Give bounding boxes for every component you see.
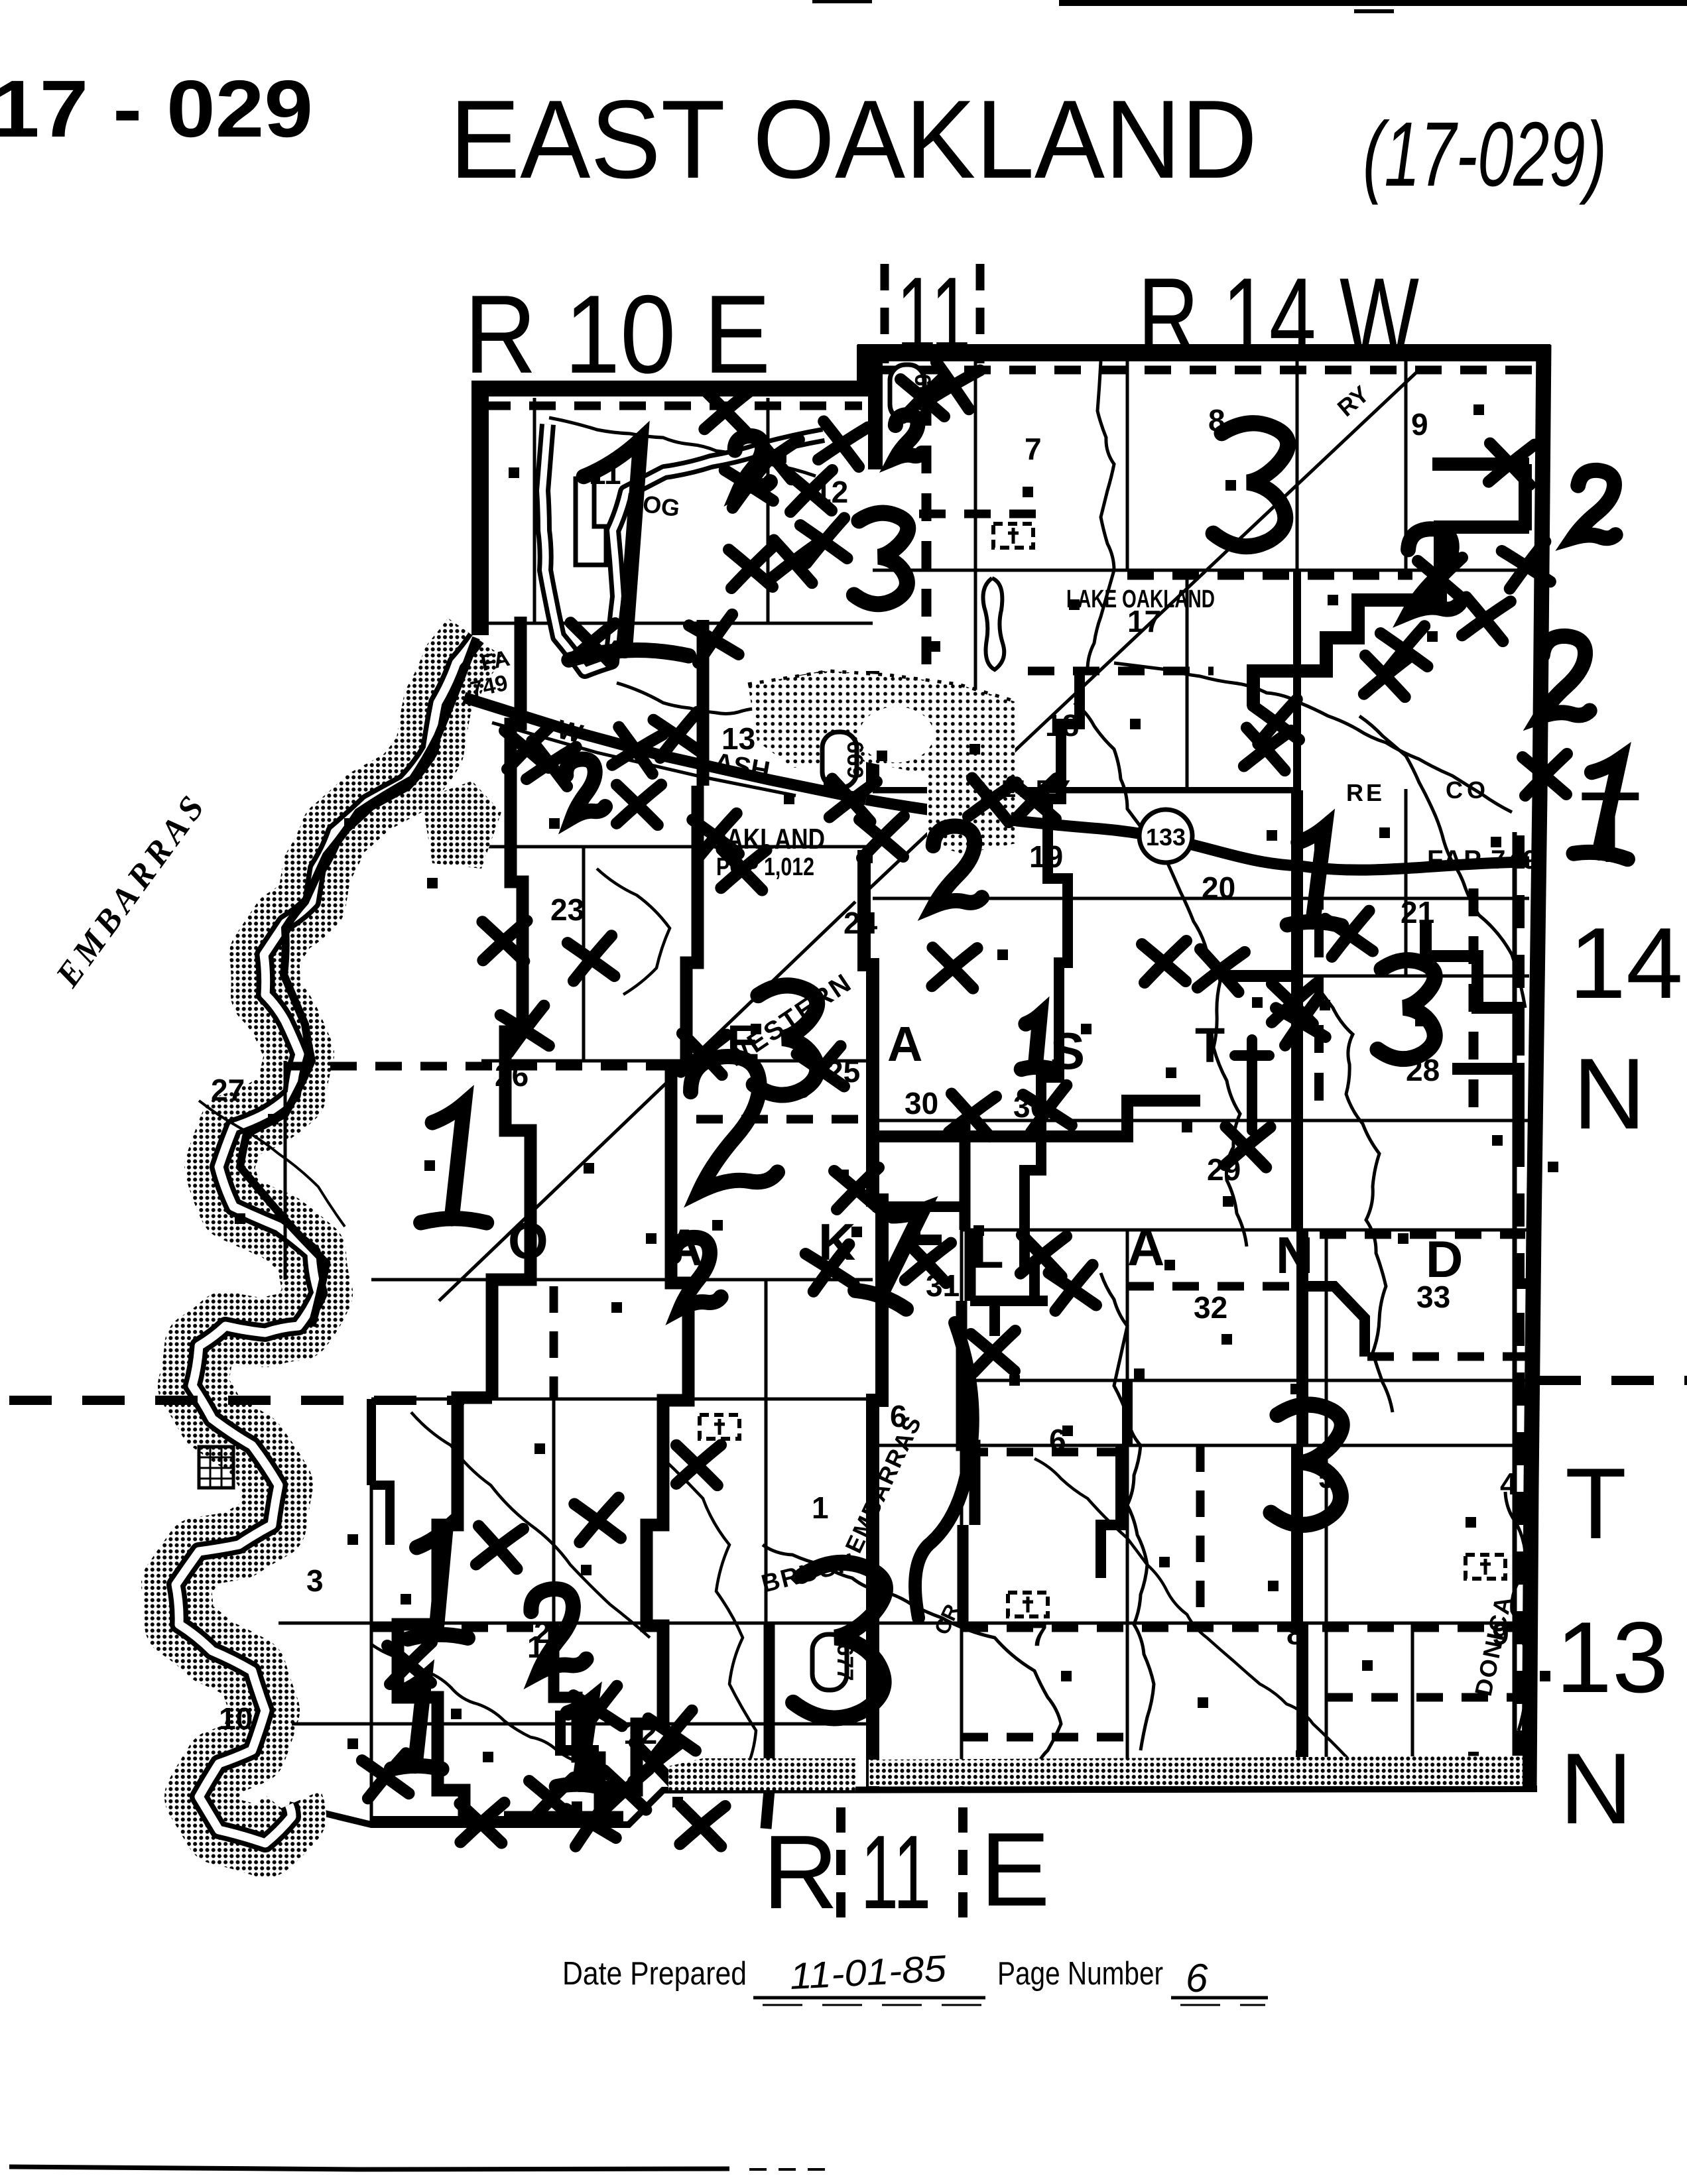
svg-text:L: L bbox=[972, 1221, 1004, 1279]
svg-text:D: D bbox=[1426, 1230, 1463, 1288]
svg-text:23: 23 bbox=[550, 892, 584, 927]
svg-text:RE: RE bbox=[1346, 779, 1385, 806]
svg-text:CO: CO bbox=[1446, 776, 1489, 804]
svg-text:11-01-85: 11-01-85 bbox=[788, 1947, 948, 1997]
svg-text:30: 30 bbox=[905, 1086, 938, 1121]
svg-text:133: 133 bbox=[1146, 823, 1186, 851]
svg-text:7: 7 bbox=[1031, 1618, 1048, 1652]
svg-text:N: N bbox=[1560, 1732, 1633, 1845]
svg-text:3: 3 bbox=[306, 1563, 324, 1598]
svg-text:669: 669 bbox=[842, 741, 867, 779]
svg-text:R 10 E: R 10 E bbox=[464, 272, 771, 396]
svg-text:6: 6 bbox=[1186, 1956, 1208, 2000]
svg-text:(17-029): (17-029) bbox=[1363, 103, 1607, 206]
svg-text:21: 21 bbox=[1401, 895, 1434, 930]
svg-text:T: T bbox=[1565, 1447, 1627, 1560]
svg-text:24: 24 bbox=[843, 906, 878, 940]
svg-text:9: 9 bbox=[1492, 1616, 1509, 1651]
svg-text:N: N bbox=[1276, 1226, 1313, 1284]
svg-text:Date Prepared: Date Prepared bbox=[562, 1956, 747, 1992]
svg-text:13: 13 bbox=[721, 721, 755, 756]
svg-text:T: T bbox=[1195, 1018, 1225, 1073]
svg-text:E: E bbox=[980, 1811, 1050, 1928]
svg-text:10: 10 bbox=[219, 1701, 253, 1736]
svg-text:1: 1 bbox=[812, 1490, 829, 1525]
svg-text:17 - 029: 17 - 029 bbox=[0, 64, 313, 154]
svg-text:O: O bbox=[508, 1211, 548, 1270]
svg-text:32: 32 bbox=[1194, 1290, 1227, 1325]
svg-text:S: S bbox=[1050, 1022, 1085, 1080]
svg-text:27: 27 bbox=[211, 1073, 245, 1107]
svg-text:17: 17 bbox=[1127, 604, 1161, 638]
svg-text:11: 11 bbox=[861, 1814, 931, 1931]
svg-text:19: 19 bbox=[1029, 839, 1063, 874]
svg-text:6: 6 bbox=[890, 1399, 907, 1433]
svg-text:18: 18 bbox=[1045, 708, 1079, 743]
svg-text:14: 14 bbox=[1569, 907, 1683, 1020]
svg-text:Page Number: Page Number bbox=[997, 1956, 1163, 1992]
svg-text:8: 8 bbox=[1286, 1616, 1304, 1651]
svg-text:7: 7 bbox=[1025, 432, 1042, 466]
svg-text:20: 20 bbox=[1202, 871, 1235, 905]
svg-text:A: A bbox=[887, 1016, 922, 1071]
svg-text:A: A bbox=[1127, 1218, 1164, 1276]
svg-text:R: R bbox=[763, 1814, 838, 1931]
svg-text:9: 9 bbox=[1411, 407, 1428, 442]
svg-text:13: 13 bbox=[1556, 1601, 1668, 1714]
svg-text:4: 4 bbox=[1500, 1467, 1517, 1501]
svg-text:A: A bbox=[666, 1218, 703, 1276]
svg-text:EAST OAKLAND: EAST OAKLAND bbox=[450, 77, 1257, 202]
svg-text:E: E bbox=[727, 1015, 759, 1070]
svg-text:N: N bbox=[1573, 1038, 1646, 1150]
svg-text:FAP 749: FAP 749 bbox=[1427, 845, 1539, 875]
svg-text:26: 26 bbox=[495, 1058, 529, 1093]
